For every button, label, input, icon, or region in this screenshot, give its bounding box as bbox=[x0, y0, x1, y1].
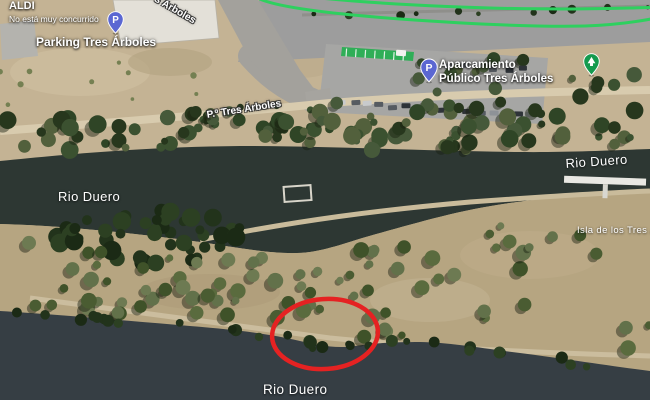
poi-label-aldi[interactable]: ALDI No está muy concurrido bbox=[9, 0, 99, 24]
public-parking-pin-icon[interactable]: P bbox=[420, 58, 438, 84]
poi-label-parking-tres-arboles[interactable]: Parking Tres Árboles bbox=[36, 35, 156, 49]
poi-label-aparcamiento[interactable]: Aparcamiento Público Tres Árboles bbox=[439, 59, 553, 86]
aparcamiento-line2[interactable]: Público Tres Árboles bbox=[439, 73, 553, 87]
dirt-patch bbox=[128, 48, 212, 76]
park-pin-icon[interactable] bbox=[583, 53, 600, 77]
satellite-map-canvas[interactable]: ALDI No está muy concurrido P Parking Tr… bbox=[0, 0, 650, 400]
aparcamiento-line1[interactable]: Aparcamiento bbox=[439, 59, 553, 73]
parking-pin-letter: P bbox=[112, 15, 119, 26]
river-label-left: Rio Duero bbox=[58, 189, 120, 204]
aldi-busyness-status: No está muy concurrido bbox=[9, 14, 99, 24]
river-label-bottom: Rio Duero bbox=[263, 382, 327, 397]
parked-van bbox=[396, 50, 406, 57]
small-building bbox=[0, 20, 38, 60]
island-label: Isla de los Tres Árboles bbox=[577, 225, 650, 236]
aldi-title[interactable]: ALDI bbox=[9, 0, 99, 12]
parking-pin-icon[interactable]: P bbox=[107, 11, 124, 35]
public-parking-pin-letter: P bbox=[425, 62, 432, 74]
